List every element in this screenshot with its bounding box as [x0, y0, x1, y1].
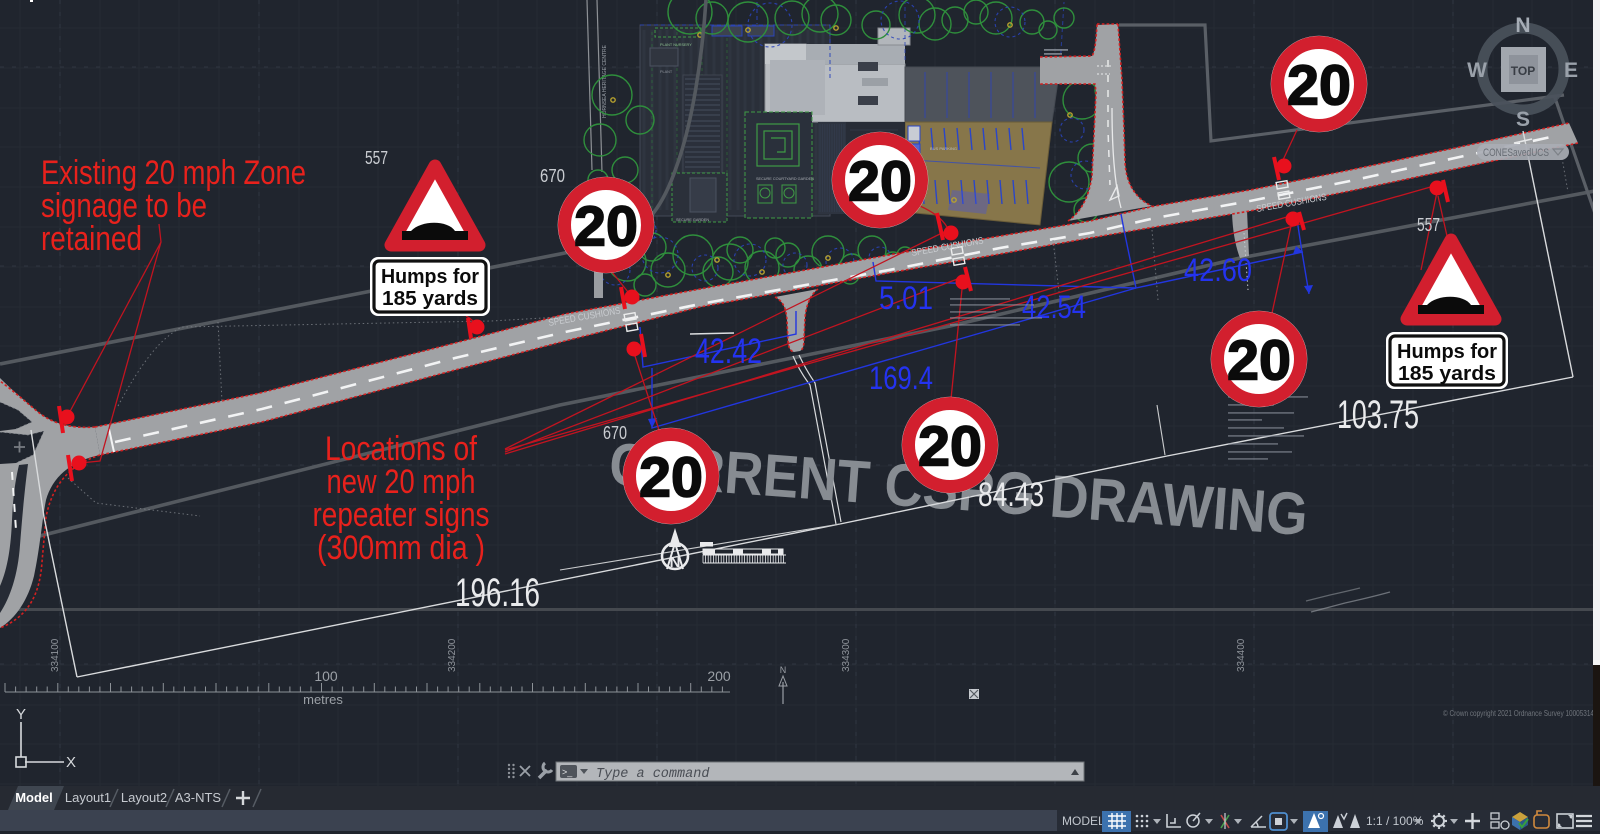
svg-text:334300: 334300	[841, 638, 852, 672]
svg-text:42.42: 42.42	[695, 332, 762, 371]
svg-text:670: 670	[603, 423, 627, 443]
svg-text:metres: metres	[303, 692, 343, 707]
svg-text:20: 20	[639, 446, 703, 510]
svg-text:196.16: 196.16	[455, 571, 540, 615]
svg-text:S: S	[1516, 108, 1530, 131]
svg-text:CONESavedUCS: CONESavedUCS	[1483, 147, 1549, 159]
svg-text:20: 20	[848, 150, 912, 214]
svg-text:185 yards: 185 yards	[1398, 362, 1496, 385]
svg-text:20: 20	[1287, 54, 1351, 118]
svg-text:Layout2: Layout2	[121, 790, 167, 805]
svg-text:TOP: TOP	[1511, 64, 1535, 78]
svg-text:169.4: 169.4	[869, 360, 933, 396]
svg-text:Humps for: Humps for	[1397, 340, 1497, 363]
svg-text:557: 557	[365, 148, 388, 168]
svg-text:A3-NTS: A3-NTS	[175, 790, 222, 805]
svg-text:84.43: 84.43	[978, 476, 1044, 514]
svg-text:Model: Model	[15, 790, 53, 805]
svg-text:E: E	[1564, 59, 1578, 82]
svg-text:N: N	[670, 554, 681, 571]
svg-text:185 yards: 185 yards	[382, 287, 478, 310]
svg-text:BUS PARKING: BUS PARKING	[930, 146, 957, 151]
svg-text:103.75: 103.75	[1337, 393, 1419, 437]
svg-text:>_: >_	[562, 767, 573, 777]
svg-text:© Crown copyright 2021 Ordnanc: © Crown copyright 2021 Ordnance Survey 1…	[1443, 709, 1594, 718]
svg-text:X: X	[66, 754, 76, 771]
svg-text:retained: retained	[41, 220, 142, 258]
svg-text:20: 20	[574, 195, 638, 259]
svg-text:SECURE COURTYARD GARDEN: SECURE COURTYARD GARDEN	[756, 177, 814, 181]
svg-text:Humps for: Humps for	[381, 265, 479, 288]
svg-text:5.01: 5.01	[879, 280, 933, 316]
svg-text:20: 20	[918, 415, 982, 479]
svg-text:200: 200	[707, 668, 731, 684]
svg-text:670: 670	[540, 166, 565, 186]
svg-text:334400: 334400	[1236, 638, 1247, 672]
svg-text:PLANT NURSERY: PLANT NURSERY	[660, 43, 692, 47]
svg-text:557: 557	[1417, 215, 1440, 235]
svg-text:(300mm dia ): (300mm dia )	[317, 529, 485, 567]
svg-text:Y: Y	[16, 706, 26, 723]
svg-text:334100: 334100	[50, 638, 61, 672]
svg-text:N: N	[780, 665, 787, 675]
svg-text:334200: 334200	[447, 638, 458, 672]
svg-text:HORNSEA HERITAGE CENTRE: HORNSEA HERITAGE CENTRE	[602, 44, 608, 118]
svg-text:N: N	[1515, 14, 1530, 37]
svg-text:Layout1: Layout1	[65, 790, 111, 805]
svg-text:W: W	[1467, 59, 1487, 82]
svg-text:Type a command: Type a command	[596, 767, 710, 782]
svg-text:20: 20	[1227, 329, 1291, 393]
svg-text:100: 100	[314, 668, 338, 684]
svg-text:42.54: 42.54	[1022, 289, 1086, 325]
svg-text:SECURE GARDEN: SECURE GARDEN	[676, 218, 709, 222]
svg-text:MODEL: MODEL	[1062, 814, 1105, 828]
svg-text:42.60: 42.60	[1184, 252, 1252, 288]
svg-text:1:1 / 100%: 1:1 / 100%	[1366, 814, 1424, 828]
svg-text:PLANT: PLANT	[660, 70, 673, 74]
